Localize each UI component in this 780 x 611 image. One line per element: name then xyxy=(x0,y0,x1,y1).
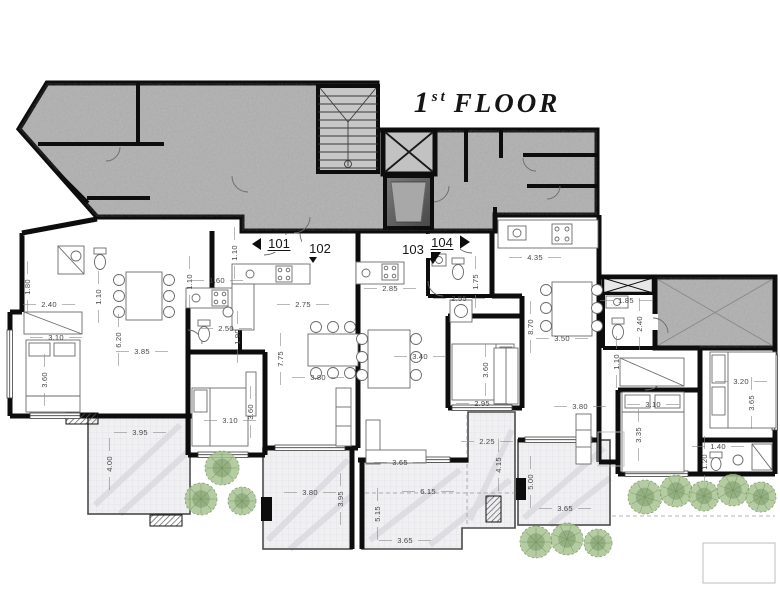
dimension-label: 1.80 xyxy=(23,279,32,295)
palm-plant xyxy=(660,475,692,507)
dimension-label: 3.60 xyxy=(40,372,49,388)
floor-plan-page: 1stFLOOR 101102103104 1.802.401.103.106.… xyxy=(0,0,780,611)
dimension-label: 2.40 xyxy=(635,316,644,332)
bed xyxy=(26,340,80,412)
dimension-label: 1.85 xyxy=(618,296,634,305)
palm-plant xyxy=(689,481,719,511)
dimension-label: 1.20 xyxy=(700,454,709,470)
dimension-label: 2.25 xyxy=(479,437,495,446)
dimension-label: 4.00 xyxy=(105,456,114,472)
dimension-label: 5.00 xyxy=(526,474,535,490)
dimension-label: 2.40 xyxy=(41,300,57,309)
dimension-label: 1.10 xyxy=(94,289,103,305)
sofa xyxy=(576,414,591,464)
dimension-label: 3.60 xyxy=(246,404,255,420)
kitchen-counter xyxy=(356,262,404,284)
dimension-label: 3.80 xyxy=(572,402,588,411)
elevator xyxy=(383,130,435,228)
window xyxy=(30,413,80,419)
dimension-label: 3.95 xyxy=(336,491,345,507)
dimension-label: 6.15 xyxy=(420,487,436,496)
dimension-label: 3.10 xyxy=(222,416,238,425)
dimension-label: 3.65 xyxy=(747,395,756,411)
bed xyxy=(710,352,776,428)
bush-plant xyxy=(584,529,612,557)
dimension-label: 3.65 xyxy=(392,458,408,467)
dimension-label: 3.80 xyxy=(310,373,326,382)
dimension-label: 2.85 xyxy=(382,284,398,293)
sofa xyxy=(336,388,351,446)
right-concrete-block xyxy=(655,277,775,348)
dimension-label: 1.90 xyxy=(233,329,242,345)
staircase xyxy=(318,86,378,172)
dimension-label: 3.10 xyxy=(645,400,661,409)
palm-plant xyxy=(717,474,749,506)
dimension-label: 1.10 xyxy=(230,245,239,261)
kitchen-counter xyxy=(232,264,310,330)
dimension-label: 3.65 xyxy=(397,536,413,545)
floor-title: 1stFLOOR xyxy=(414,86,561,119)
bush-plant xyxy=(185,483,217,515)
dimension-label: 2.75 xyxy=(295,300,311,309)
lower-level-outline xyxy=(703,543,775,583)
dimension-label: 1.60 xyxy=(209,276,225,285)
window xyxy=(7,330,13,398)
dimension-label: 1.40 xyxy=(710,442,726,451)
dimension-label: 3.85 xyxy=(134,347,150,356)
dimension-label: 2.50 xyxy=(218,324,234,333)
dimension-label: 3.95 xyxy=(132,428,148,437)
unit-number: 102 xyxy=(309,241,331,256)
dimension-label: 3.40 xyxy=(412,352,428,361)
elevator-car-inner xyxy=(391,182,426,222)
palm-plant xyxy=(551,523,583,555)
palm-plant xyxy=(628,480,662,514)
dimension-label: 3.50 xyxy=(554,334,570,343)
bush-plant xyxy=(228,487,256,515)
bush-plant xyxy=(520,526,552,558)
dimension-label: 3.20 xyxy=(733,377,749,386)
bathroom-door-gap xyxy=(652,314,658,330)
dimension-label: 6.20 xyxy=(114,332,123,348)
terrace-center xyxy=(362,412,515,549)
bush-plant xyxy=(205,451,239,485)
dimension-label: 2.55 xyxy=(451,294,467,303)
dimension-label: 2.95 xyxy=(474,399,490,408)
kitchen-counter xyxy=(186,288,234,308)
dimension-label: 4.15 xyxy=(494,457,503,473)
unit-number: 101 xyxy=(268,236,290,251)
dimension-label: 3.10 xyxy=(48,333,64,342)
dimension-label: 1.10 xyxy=(185,274,194,290)
dimension-label: 3.35 xyxy=(634,427,643,443)
palm-plant xyxy=(746,482,776,512)
dimension-label: 3.80 xyxy=(302,488,318,497)
dining-table xyxy=(541,282,603,336)
dimension-label: 3.60 xyxy=(481,362,490,378)
kitchen-counter xyxy=(498,220,598,248)
dimension-label: 1.10 xyxy=(612,354,621,370)
duct-box xyxy=(603,278,653,293)
bed xyxy=(192,388,248,446)
dimension-label: 8.70 xyxy=(526,319,535,335)
floor-plan-drawing: 1stFLOOR 101102103104 1.802.401.103.106.… xyxy=(0,0,780,611)
window xyxy=(275,445,345,451)
dimension-label: 3.65 xyxy=(557,504,573,513)
unit-number: 104 xyxy=(431,235,453,250)
dimension-label: 1.75 xyxy=(471,274,480,290)
dining-table xyxy=(308,322,358,379)
unit-number: 103 xyxy=(402,242,424,257)
dimension-label: 5.15 xyxy=(373,506,382,522)
dimension-label: 7.75 xyxy=(276,351,285,367)
dimension-label: 4.35 xyxy=(527,253,543,262)
dining-table xyxy=(114,272,175,320)
